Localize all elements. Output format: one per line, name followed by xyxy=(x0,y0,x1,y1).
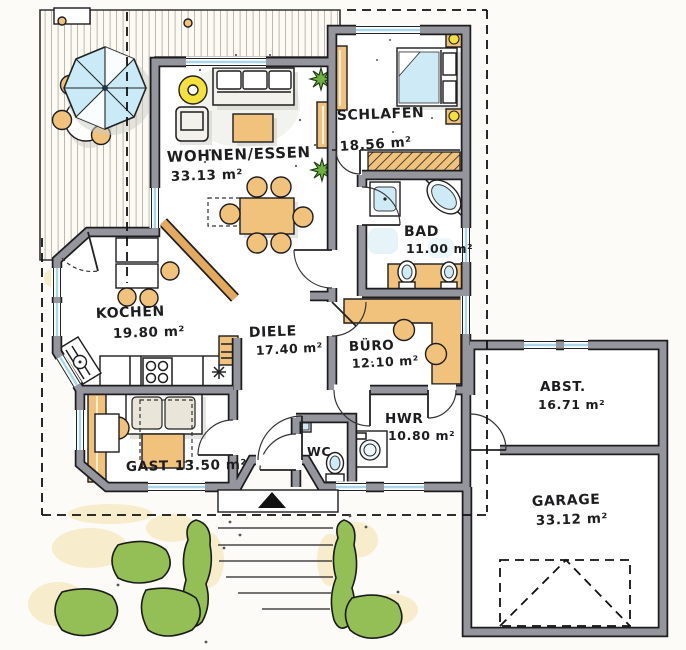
room-area-wohnen: 33.13 m² xyxy=(171,166,244,185)
deck-stool xyxy=(53,111,72,130)
window-living-top xyxy=(186,57,266,68)
gast-name: GAST xyxy=(126,458,169,475)
dining-chair xyxy=(247,177,267,197)
window-office-right xyxy=(461,296,472,334)
dining-chair xyxy=(271,233,291,253)
bidet xyxy=(441,262,457,289)
deck-lamp-dot xyxy=(184,19,192,27)
dining-chair xyxy=(271,177,291,197)
bush xyxy=(55,589,118,636)
window-abst-2 xyxy=(564,340,588,351)
window-kitchen-bay-2 xyxy=(52,303,63,336)
bush xyxy=(112,541,170,583)
desk-chair xyxy=(394,320,415,341)
room-area-abst: 16.71 m² xyxy=(538,397,605,412)
gast-area: 13.50 m² xyxy=(175,457,247,474)
room-label-garage: GARAGE xyxy=(532,492,601,510)
window-living-left xyxy=(150,188,161,228)
coffee-table xyxy=(233,114,273,142)
room-area-hwr: 10.80 m² xyxy=(388,428,455,443)
guest-dresser xyxy=(95,414,119,452)
desk-chair xyxy=(426,344,447,365)
window-guest-bottom xyxy=(148,482,205,493)
kitchen-table xyxy=(116,238,158,262)
room-label-abst: ABST. xyxy=(540,379,586,395)
toilet xyxy=(398,261,416,289)
window-bedroom-top xyxy=(356,25,420,36)
window-hwr-bottom-2 xyxy=(384,482,424,493)
window-abst-1 xyxy=(524,340,556,351)
room-area-kochen: 19.80 m² xyxy=(113,323,186,342)
dining-chair xyxy=(220,204,240,224)
room-label-wc: WC xyxy=(307,444,331,459)
stool xyxy=(118,288,136,306)
bedside-lamp xyxy=(449,34,459,44)
window-kitchen-bay-1 xyxy=(52,268,63,297)
window-hwr-bottom-1 xyxy=(336,482,366,493)
room-label-buero: BÜRO xyxy=(349,335,395,355)
dining-chair xyxy=(293,207,313,227)
bush xyxy=(345,595,401,638)
room-label-diele: DIELE xyxy=(249,323,297,341)
room-area-garage: 33.12 m² xyxy=(536,510,609,529)
bush xyxy=(141,588,200,636)
room-label-bad: BAD xyxy=(404,224,439,240)
kitchen-bench xyxy=(116,264,158,288)
bedside-lamp xyxy=(449,111,459,121)
room-area-bad: 11.00 m² xyxy=(406,241,473,256)
sink-icon xyxy=(212,365,226,379)
utility-fixtures xyxy=(353,431,387,467)
room-label-hwr: HWR xyxy=(385,411,423,427)
floor-plan-canvas: WOHNEN/ESSEN 33.13 m² SCHLAFEN 18.56 m² … xyxy=(0,0,686,650)
room-label-gast: GAST13.50 m² xyxy=(126,457,247,475)
room-label-schlafen: SCHLAFEN xyxy=(337,105,425,124)
floor-plan-page: WOHNEN/ESSEN 33.13 m² SCHLAFEN 18.56 m² … xyxy=(0,0,686,650)
deck-lamp-dot xyxy=(58,17,66,25)
window-guest-left xyxy=(75,410,86,450)
stool xyxy=(161,262,179,280)
dining-chair xyxy=(247,233,267,253)
dining-table xyxy=(240,198,294,234)
room-label-kochen: KOCHEN xyxy=(96,304,166,322)
